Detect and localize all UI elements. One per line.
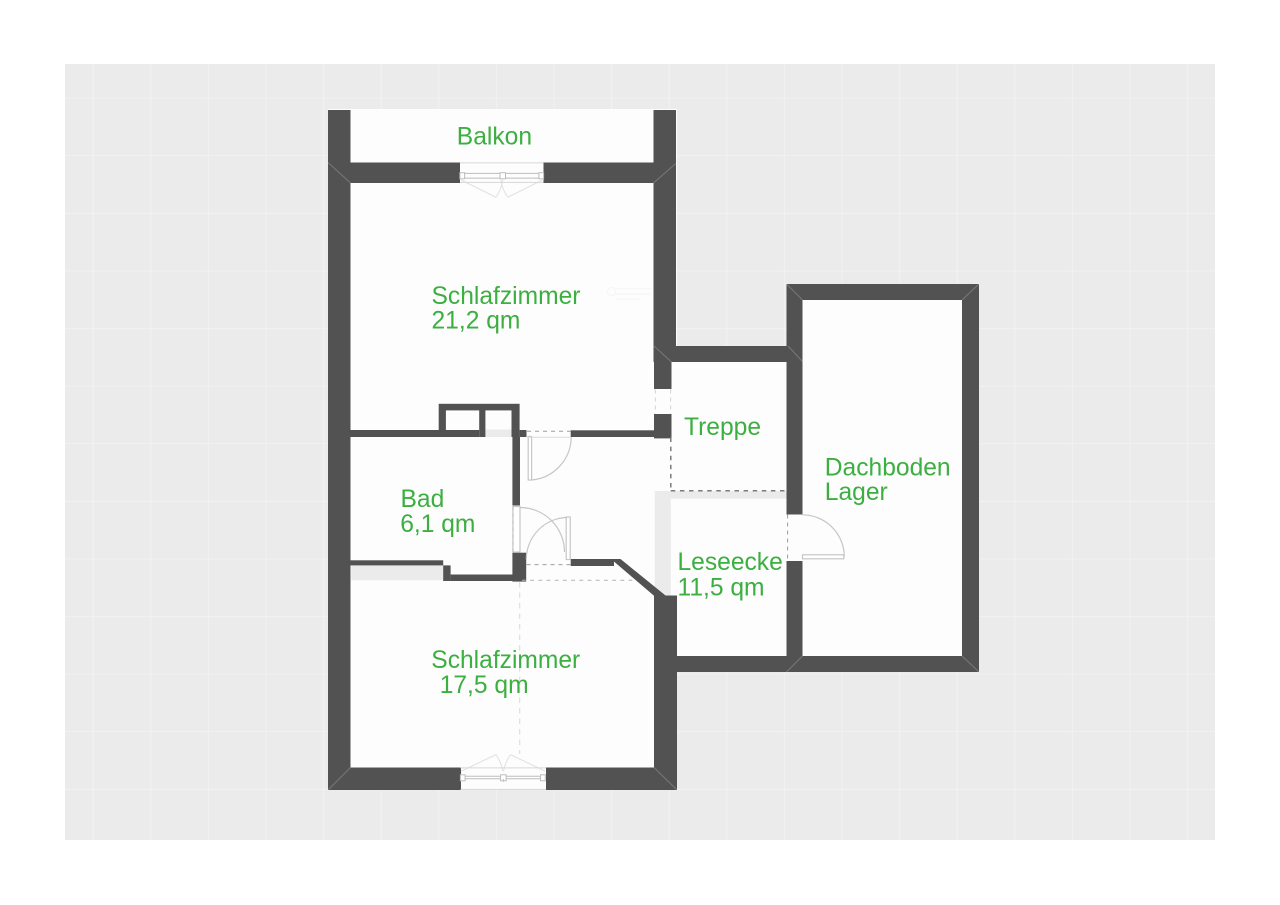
- svg-text:Balkon: Balkon: [457, 124, 532, 151]
- svg-text:Bad: Bad: [401, 486, 445, 513]
- svg-text:Dachboden: Dachboden: [825, 454, 951, 481]
- svg-text:21,2 qm: 21,2 qm: [432, 308, 521, 335]
- svg-text:Treppe: Treppe: [684, 414, 761, 441]
- svg-text:Schlafzimmer: Schlafzimmer: [431, 647, 580, 674]
- svg-text:Lager: Lager: [825, 479, 888, 506]
- svg-text:Schlafzimmer: Schlafzimmer: [432, 283, 581, 310]
- svg-text:6,1 qm: 6,1 qm: [400, 511, 475, 538]
- svg-text:17,5 qm: 17,5 qm: [440, 672, 529, 699]
- svg-text:Leseecke: Leseecke: [678, 549, 783, 576]
- svg-text:11,5 qm: 11,5 qm: [678, 574, 765, 601]
